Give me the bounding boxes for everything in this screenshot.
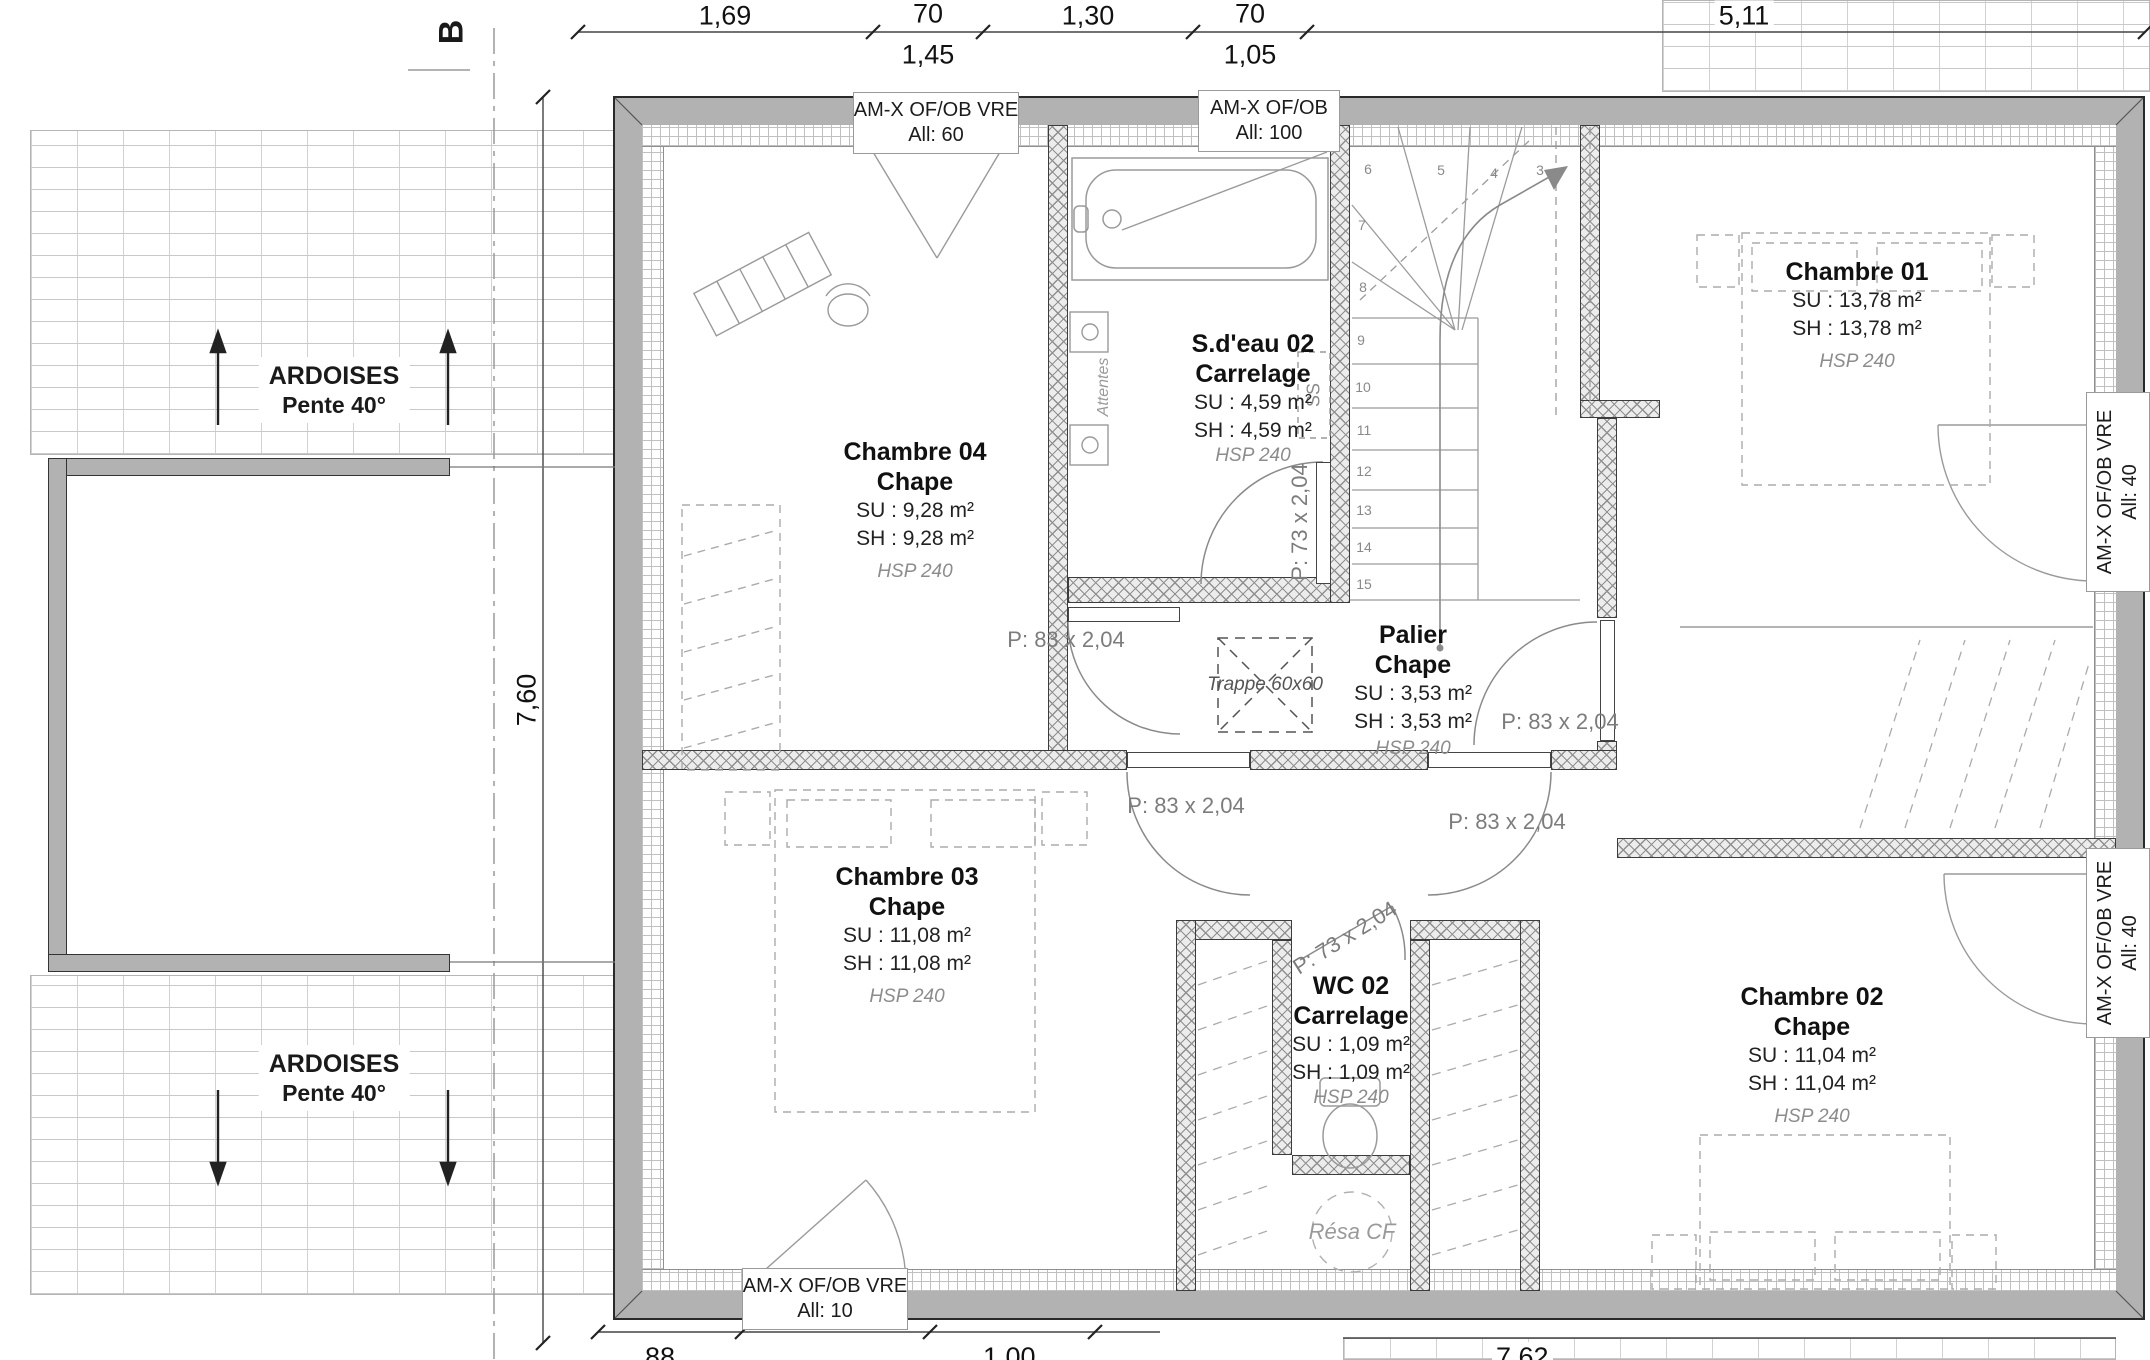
room-su: SU : 11,04 m² xyxy=(1740,1042,1883,1070)
wall-liner-left xyxy=(642,147,664,1269)
wall-palier-bottom-right xyxy=(1551,750,1617,770)
dim-bottom-1: 88 xyxy=(645,1342,675,1360)
wall-stair-left xyxy=(1330,125,1350,603)
wall-closet-right-inner xyxy=(1410,940,1430,1291)
window-label-top-1-line2: All: 60 xyxy=(908,124,964,146)
room-label-palier: Palier Chape SU : 3,53 m² SH : 3,53 m² H… xyxy=(1354,620,1472,760)
gable-wall-left xyxy=(48,458,67,972)
dim-bottom-2: 1,00 xyxy=(983,1342,1036,1360)
room-hsp: HSP 240 xyxy=(835,986,978,1008)
room-label-chambre03: Chambre 03 Chape SU : 11,08 m² SH : 11,0… xyxy=(835,862,978,1008)
roof-label-top: ARDOISES Pente 40° xyxy=(259,357,410,423)
room-finish: Chape xyxy=(1354,650,1472,680)
section-marker-b: B xyxy=(433,20,472,45)
wall-closet-right-outer xyxy=(1520,920,1540,1291)
room-sh: SH : 1,09 m² xyxy=(1292,1059,1410,1087)
room-finish: Chape xyxy=(1740,1012,1883,1042)
stair-number: 5 xyxy=(1437,162,1445,178)
stair-number: 10 xyxy=(1355,379,1371,395)
room-name: Chambre 03 xyxy=(835,862,978,892)
room-label-chambre02: Chambre 02 Chape SU : 11,04 m² SH : 11,0… xyxy=(1740,982,1883,1128)
room-sh: SH : 11,08 m² xyxy=(835,950,978,978)
stair-number: 4 xyxy=(1490,165,1498,181)
room-label-chambre01: Chambre 01 Chape SU : 13,78 m² SH : 13,7… xyxy=(1785,257,1928,373)
wall-closet-left-inner xyxy=(1272,940,1292,1155)
wall-chambre01-left-upper xyxy=(1597,418,1617,618)
wall-bathroom-left xyxy=(1048,125,1068,770)
stair-number: 14 xyxy=(1356,539,1372,555)
room-sh: SH : 3,53 m² xyxy=(1354,708,1472,736)
room-hsp: HSP 240 xyxy=(1292,1087,1410,1109)
attentes-label: Attentes xyxy=(1095,358,1113,417)
room-label-chambre04: Chambre 04 Chape SU : 9,28 m² SH : 9,28 … xyxy=(843,437,986,583)
room-hsp: HSP 240 xyxy=(843,561,986,583)
dim-top-sub-2: 1,05 xyxy=(1224,40,1277,71)
room-su: SU : 3,53 m² xyxy=(1354,680,1472,708)
dim-top-2: 70 xyxy=(913,0,943,30)
room-finish: Chape xyxy=(843,467,986,497)
window-label-top-2-line1: AM-X OF/OB xyxy=(1210,97,1328,119)
door-leaf-bathroom xyxy=(1068,607,1180,622)
window-label-right-1-line2: All: 40 xyxy=(2119,464,2141,520)
room-label-wc02: WC 02 Carrelage SU : 1,09 m² SH : 1,09 m… xyxy=(1292,971,1410,1109)
room-name: WC 02 xyxy=(1292,971,1410,1001)
roof-hatch-bottom-left xyxy=(30,975,618,1295)
wall-stair-right xyxy=(1580,125,1600,418)
roof-label-bottom-line2: Pente 40° xyxy=(269,1079,400,1107)
roof-hatch-bottom-right xyxy=(1343,1338,2116,1360)
stair-number: 6 xyxy=(1364,161,1372,177)
room-sh: SH : 13,78 m² xyxy=(1785,315,1928,343)
room-label-sdeau02: S.d'eau 02 Carrelage SU : 4,59 m² SH : 4… xyxy=(1192,329,1315,467)
door-leaf-palier-left xyxy=(1127,752,1250,768)
door-label-bathroom: P: 83 x 2,04 xyxy=(1007,627,1124,653)
room-hsp: HSP 240 xyxy=(1785,351,1928,373)
stair-number: 8 xyxy=(1359,279,1367,295)
stair-number: 11 xyxy=(1357,422,1372,438)
door-leaf-bathroom-internal xyxy=(1316,462,1331,584)
room-su: SU : 9,28 m² xyxy=(843,497,986,525)
stair-number: 3 xyxy=(1536,162,1544,178)
wall-wc-bottom xyxy=(1292,1155,1410,1175)
dim-top-3: 1,30 xyxy=(1062,1,1115,32)
floor-plan-sheet: 1,69 70 1,30 70 1,45 1,05 5,11 7,60 B 88… xyxy=(0,0,2150,1360)
stair-number: 12 xyxy=(1356,463,1372,479)
window-label-bottom: AM-X OF/OB VRE All: 10 xyxy=(742,1268,908,1330)
room-sh: SH : 9,28 m² xyxy=(843,525,986,553)
wall-liner-right xyxy=(2094,147,2116,1269)
door-label-palier-left: P: 83 x 2,04 xyxy=(1127,793,1244,819)
trappe-label: Trappe 60x60 xyxy=(1207,674,1323,696)
wall-bathroom-bottom xyxy=(1068,577,1350,603)
wall-stub-chambre01 xyxy=(1580,400,1660,418)
room-su: SU : 13,78 m² xyxy=(1785,287,1928,315)
dim-top-1: 1,69 xyxy=(699,1,752,32)
roof-label-top-line1: ARDOISES xyxy=(269,361,400,391)
wall-chambre01-chambre02 xyxy=(1617,838,2116,858)
room-sh: SH : 4,59 m² xyxy=(1192,417,1315,445)
gable-wall-bottom xyxy=(48,954,450,972)
wall-closet-left-outer xyxy=(1176,920,1196,1291)
window-label-top-2: AM-X OF/OB All: 100 xyxy=(1198,90,1340,152)
room-su: SU : 4,59 m² xyxy=(1192,389,1315,417)
room-name: Chambre 01 xyxy=(1785,257,1928,287)
window-label-top-1-line1: AM-X OF/OB VRE xyxy=(854,99,1018,121)
door-label-bathroom-internal: P: 73 x 2,04 xyxy=(1287,463,1313,580)
stair-number: 9 xyxy=(1357,332,1365,348)
room-su: SU : 11,08 m² xyxy=(835,922,978,950)
room-name: Chambre 04 xyxy=(843,437,986,467)
dim-left-vertical: 7,60 xyxy=(512,674,543,727)
stair-number: 15 xyxy=(1356,576,1372,592)
room-hsp: HSP 240 xyxy=(1354,738,1472,760)
room-finish: Carrelage xyxy=(1192,359,1315,389)
room-finish: Chape xyxy=(835,892,978,922)
roof-label-bottom-line1: ARDOISES xyxy=(269,1049,400,1079)
dim-top-right: 5,11 xyxy=(1715,1,1774,32)
stair-number: 13 xyxy=(1356,502,1372,518)
stair-number: 7 xyxy=(1358,217,1366,233)
roof-label-bottom: ARDOISES Pente 40° xyxy=(259,1045,410,1111)
room-su: SU : 1,09 m² xyxy=(1292,1031,1410,1059)
window-label-right-1-line1: AM-X OF/OB VRE xyxy=(2094,410,2116,574)
window-label-right-1: AM-X OF/OB VRE All: 40 xyxy=(2086,392,2150,592)
gable-wall-top xyxy=(48,458,450,476)
dim-bottom-right: 7,62 xyxy=(1492,1342,1553,1360)
dim-top-sub-1: 1,45 xyxy=(902,40,955,71)
window-label-right-2: AM-X OF/OB VRE All: 40 xyxy=(2086,848,2150,1038)
window-label-bottom-line2: All: 10 xyxy=(797,1300,853,1322)
room-sh: SH : 11,04 m² xyxy=(1740,1070,1883,1098)
dim-top-4: 70 xyxy=(1235,0,1265,30)
wall-palier-bottom-left xyxy=(642,750,1127,770)
window-label-bottom-line1: AM-X OF/OB VRE xyxy=(743,1275,907,1297)
roof-label-top-line2: Pente 40° xyxy=(269,391,400,419)
resa-cf-label: Résa CF xyxy=(1309,1219,1396,1245)
room-name: Chambre 02 xyxy=(1740,982,1883,1012)
room-name: Palier xyxy=(1354,620,1472,650)
window-label-top-1: AM-X OF/OB VRE All: 60 xyxy=(853,92,1019,154)
window-label-right-2-line1: AM-X OF/OB VRE xyxy=(2094,861,2116,1025)
window-label-top-2-line2: All: 100 xyxy=(1236,122,1303,144)
room-finish: Carrelage xyxy=(1292,1001,1410,1031)
room-hsp: HSP 240 xyxy=(1740,1106,1883,1128)
window-label-right-2-line2: All: 40 xyxy=(2119,915,2141,971)
room-name: S.d'eau 02 xyxy=(1192,329,1315,359)
door-label-chambre01: P: 83 x 2,04 xyxy=(1501,709,1618,735)
door-label-palier-right: P: 83 x 2,04 xyxy=(1448,809,1565,835)
